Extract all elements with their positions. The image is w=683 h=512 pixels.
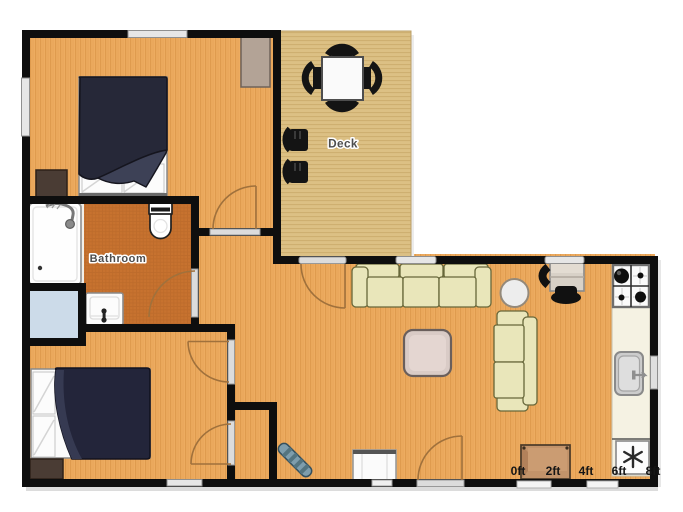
svg-text:Bathroom: Bathroom [90, 253, 147, 265]
svg-text:2ft: 2ft [546, 464, 561, 478]
svg-text:0ft: 0ft [511, 464, 526, 478]
svg-text:8ft: 8ft [646, 464, 661, 478]
svg-text:4ft: 4ft [579, 464, 594, 478]
svg-text:6ft: 6ft [612, 464, 627, 478]
svg-text:Deck: Deck [328, 137, 358, 151]
